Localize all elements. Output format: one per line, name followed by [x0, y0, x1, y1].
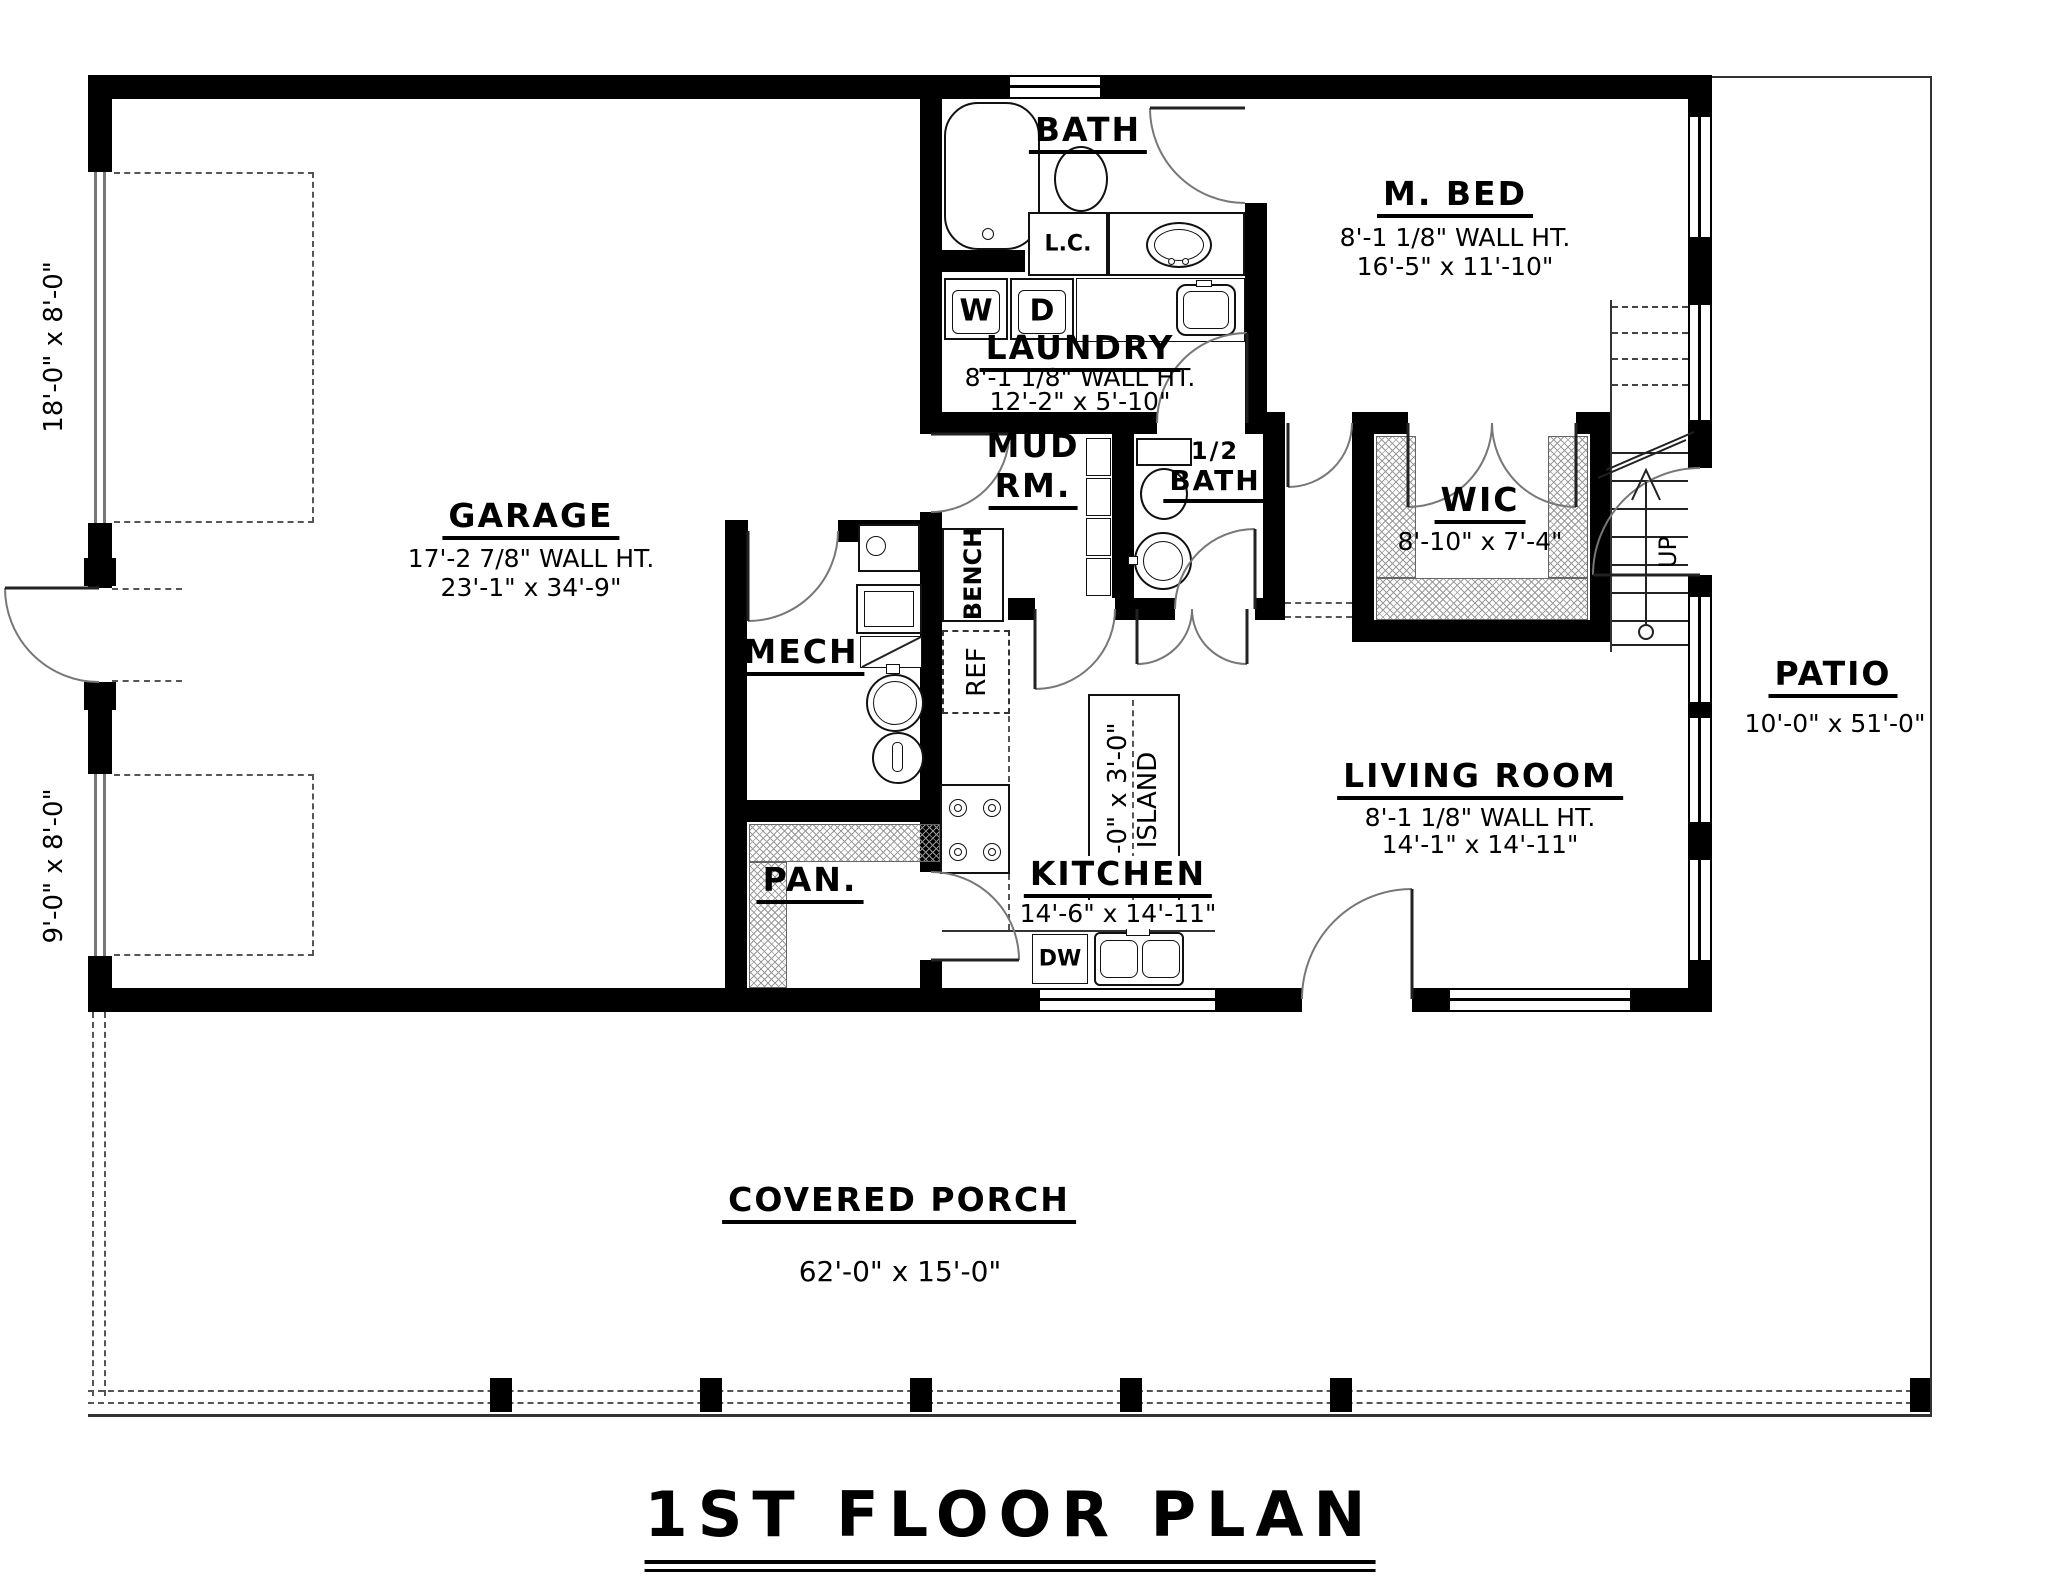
burner-center	[988, 804, 996, 812]
wall-wic-right	[1590, 434, 1612, 642]
stairs-up-label: UP	[1654, 536, 1682, 568]
burner-center	[954, 848, 962, 856]
wall-left-3	[88, 682, 112, 774]
counter-edge-dash	[1008, 874, 1010, 930]
stair-break-line	[1606, 432, 1694, 470]
garage-wall-ht: 17'-2 7/8" WALL HT.	[408, 545, 655, 574]
pressure-tank-pill	[892, 742, 903, 772]
window-mbed	[1688, 117, 1712, 237]
half-bath-label-line2: BATH	[1163, 466, 1266, 503]
wall-right-2	[1688, 237, 1712, 305]
wall-bath-mbed	[1245, 203, 1267, 434]
stair-tread-upper	[1612, 358, 1688, 360]
dishwasher-label: DW	[1039, 947, 1082, 972]
porch-post	[490, 1378, 512, 1412]
wall-wic-bottom	[1352, 620, 1612, 642]
stair-tread	[1612, 508, 1688, 510]
porch-post	[1910, 1378, 1932, 1412]
wall-bottom-3	[1412, 988, 1450, 1012]
mbed-wall-ht: 8'-1 1/8" WALL HT.	[1340, 224, 1571, 253]
page-title: 1ST FLOOR PLAN	[645, 1478, 1376, 1551]
laundry-faucet	[1196, 280, 1212, 287]
stair-tread	[1612, 620, 1688, 622]
wall-wic-left	[1352, 434, 1374, 642]
wall-mech-pan	[725, 800, 940, 822]
wall-bottom-2	[1215, 988, 1302, 1012]
wall-bath-bottom	[920, 250, 1025, 272]
stair-tread	[1612, 480, 1688, 482]
porch-post	[1330, 1378, 1352, 1412]
tub-drain	[982, 228, 994, 240]
washer-label: W	[959, 294, 992, 329]
bench-label: BENCH	[959, 528, 987, 620]
porch-post	[1120, 1378, 1142, 1412]
mud-locker	[1086, 518, 1111, 556]
wall-kitchen-pantry-2	[920, 960, 942, 988]
halfbath-sink-basin	[1143, 541, 1183, 581]
wall-left-1	[88, 75, 112, 172]
wall-right-5	[1688, 702, 1712, 718]
wall-top-1	[88, 75, 1010, 99]
door-arc-front	[1302, 889, 1412, 999]
wall-halfbath-right	[1263, 434, 1285, 598]
stair-tread-upper	[1612, 332, 1688, 334]
window-living-2	[1688, 718, 1712, 822]
pantry-shelf-top	[749, 824, 940, 862]
wall-mbed-bottom-1	[1352, 412, 1408, 434]
garage-label: GARAGE	[442, 498, 619, 540]
door-header-dash	[112, 588, 182, 590]
kitchen-sink-basin	[1142, 940, 1180, 978]
bath-sink-basin	[1154, 229, 1204, 261]
halfbath-toilet-tank	[1136, 438, 1192, 466]
door-arc-double-right	[1192, 609, 1247, 664]
door-arc-garage-side	[5, 588, 99, 682]
garage-door-track-large	[114, 172, 314, 523]
garage-door-small-size: 9'-0" x 8'-0"	[39, 788, 69, 943]
title-underline-1	[645, 1560, 1376, 1564]
porch-rail-dash	[88, 1390, 1932, 1392]
water-heater-stub	[886, 664, 900, 674]
stair-tread-upper	[1612, 384, 1688, 386]
door-header-dash	[112, 680, 182, 682]
patio-dims: 10'-0" x 51'-0"	[1745, 710, 1926, 739]
porch-post	[700, 1378, 722, 1412]
pan-label: PAN.	[757, 862, 864, 904]
garage-door-large	[94, 172, 106, 523]
wall-mud-bottom-2	[1115, 598, 1175, 620]
garage-door-track-small	[114, 774, 314, 956]
patio-label: PATIO	[1769, 656, 1898, 698]
kitchen-sink-basin	[1100, 940, 1138, 978]
garage-door-large-size: 18'-0" x 8'-0"	[39, 261, 69, 433]
porch-edge-line	[88, 1414, 1932, 1417]
window-bath	[1010, 75, 1100, 99]
porch-left-rail-dash	[104, 1012, 106, 1396]
window-living-front	[1450, 988, 1630, 1012]
stair-tread	[1612, 452, 1688, 454]
stair-up-arrow-base	[1639, 625, 1653, 639]
refrigerator-label: REF	[962, 647, 992, 696]
window-kitchen-sink	[1040, 988, 1215, 1012]
wall-mech-left	[725, 520, 747, 988]
covered-porch-dims: 62'-0" x 15'-0"	[799, 1256, 1002, 1288]
range	[940, 784, 1010, 874]
stair-tread	[1612, 592, 1688, 594]
stair-up-arrowhead	[1632, 470, 1660, 500]
porch-rail-dash	[88, 1402, 1932, 1404]
mud-locker	[1086, 438, 1111, 476]
wall-top-2	[1100, 75, 1712, 99]
window-stairs	[1688, 305, 1712, 420]
door-arc-kitchen-hall	[1035, 609, 1115, 689]
porch-post	[910, 1378, 932, 1412]
wall-halfbath-left	[1112, 434, 1134, 598]
wall-mud-bottom-3	[1255, 598, 1285, 620]
wall-right-4	[1688, 575, 1712, 597]
garage-dims: 23'-1" x 34'-9"	[441, 574, 622, 603]
wall-mud-bottom-1	[1008, 598, 1035, 620]
wall-right-3	[1688, 420, 1712, 468]
door-arc-mbed	[1288, 423, 1352, 487]
floor-plan-canvas: 18'-0" x 8'-0" 9'-0" x 8'-0" L.C. W D	[0, 0, 2048, 1581]
patio-right-edge	[1930, 76, 1932, 1417]
wic-dims: 8'-10" x 7'-4"	[1397, 528, 1562, 557]
toilet-bowl	[1054, 146, 1108, 212]
wall-mbed-bottom-2	[1576, 412, 1612, 434]
garage-door-small	[94, 774, 106, 956]
wall-bottom-1	[88, 988, 1040, 1012]
mud-rm-label-line2: RM.	[989, 468, 1078, 510]
title-block: 1ST FLOOR PLAN	[645, 1478, 1376, 1572]
window-living-3	[1688, 860, 1712, 960]
mud-locker	[1086, 478, 1111, 516]
mud-locker	[1086, 558, 1111, 596]
porch-left-rail-dash	[92, 1012, 94, 1396]
title-underline-2	[645, 1569, 1376, 1572]
door-arc-pantry	[931, 872, 1019, 960]
burner-center	[988, 848, 996, 856]
door-arc-mech	[748, 531, 838, 621]
covered-porch-label: COVERED PORCH	[722, 1182, 1076, 1224]
wall-right-7	[1688, 960, 1712, 1012]
bath-faucet-dot	[1182, 258, 1189, 265]
mech-label: MECH	[737, 634, 864, 676]
kitchen-label: KITCHEN	[1024, 856, 1212, 898]
kitchen-dims: 14'-6" x 14'-11"	[1020, 900, 1217, 929]
laundry-dims: 12'-2" x 5'-10"	[990, 388, 1171, 417]
living-room-dims: 14'-1" x 14'-11"	[1382, 831, 1579, 860]
wall-right-6	[1688, 822, 1712, 860]
counter-edge-dash	[1008, 716, 1010, 782]
laundry-sink-basin	[1183, 291, 1229, 329]
window-living-1	[1688, 597, 1712, 702]
mech-utility-knob	[866, 536, 886, 556]
stair-tread-upper	[1612, 306, 1688, 308]
door-arc-bath	[1150, 108, 1245, 203]
kitchen-faucet	[1126, 928, 1150, 936]
half-bath-label-line1: 1/2	[1185, 438, 1245, 466]
wic-shelf-bottom	[1376, 578, 1588, 620]
stair-left-edge	[1610, 300, 1612, 652]
halfbath-faucet	[1128, 556, 1138, 565]
bathtub	[944, 102, 1040, 250]
water-heater-inner	[873, 681, 917, 725]
burner-center	[954, 804, 962, 812]
mud-rm-label-line1: MUD	[980, 428, 1085, 466]
closet-header-dash	[1285, 616, 1352, 618]
stair-tread	[1612, 644, 1688, 646]
wall-laundry-bottom-2	[1247, 412, 1285, 434]
door-jamb	[84, 558, 116, 586]
living-room-label: LIVING ROOM	[1337, 758, 1623, 800]
closet-header-dash	[1285, 602, 1352, 604]
dryer-label: D	[1030, 294, 1055, 329]
wic-label: WIC	[1435, 482, 1526, 524]
linen-closet-label: L.C.	[1045, 232, 1092, 257]
mbed-dims: 16'-5" x 11'-10"	[1357, 253, 1554, 282]
bath-faucet-dot	[1168, 258, 1175, 265]
patio-top-edge	[1712, 76, 1932, 78]
mbed-label: M. BED	[1377, 176, 1533, 218]
furnace-inner	[864, 591, 914, 627]
bath-label: BATH	[1029, 112, 1147, 154]
living-room-wall-ht: 8'-1 1/8" WALL HT.	[1365, 804, 1596, 833]
wall-right-1	[1688, 75, 1712, 117]
